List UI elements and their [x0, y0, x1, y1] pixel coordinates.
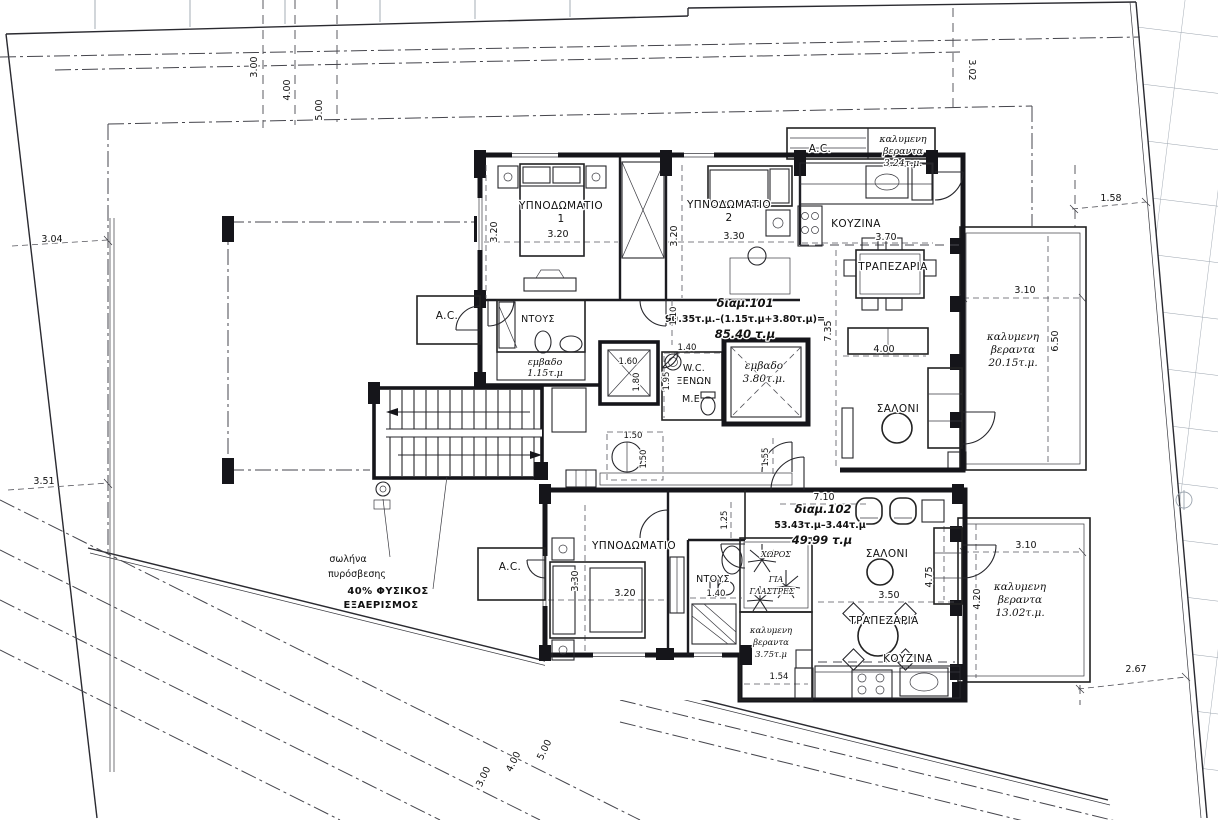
apt101-shower-area-2: 1.15τ.μ: [527, 368, 563, 379]
apt101-living-label: ΣΑΛΟΝΙ: [877, 403, 920, 415]
apt102-veranda-side-depth: 4.20: [972, 588, 983, 609]
apt101-veranda-side-2: βεραντα: [990, 344, 1035, 356]
apt102-shower-width: 1.40: [707, 589, 726, 599]
dim-left-351: 3.51: [33, 476, 54, 487]
apt102-veranda-side-3: 13.02τ.μ.: [995, 607, 1044, 619]
setback-bottom-3: 3.00: [474, 765, 493, 789]
setback-top-5: 5.00: [314, 99, 325, 120]
floor-plan-canvas: 3.00 4.00 5.00 3.04 3.51 3.02 1.58 2.67 …: [0, 0, 1218, 820]
apt101-ac-side-label: A.C.: [436, 310, 459, 322]
apt101-bedroom2-width: 3.30: [723, 231, 744, 242]
apt101-kitchen-width: 3.70: [875, 232, 896, 243]
apt102-veranda-side-2: βεραντα: [997, 594, 1042, 606]
apt101-dim-wc-width: 1.40: [678, 343, 697, 353]
apt101-bedroom2-depth: 3.20: [669, 225, 680, 246]
apt101-veranda-side-1: καλυμενη: [986, 331, 1040, 343]
apt101-kitchen-label: ΚΟΥΖΙΝΑ: [831, 218, 881, 230]
apt102-veranda-small-3: 3.75τ.μ: [755, 650, 787, 660]
dim-left-304: 3.04: [41, 234, 62, 245]
apt102-living-label: ΣΑΛΟΝΙ: [866, 548, 909, 560]
apt101-living-depth: 7.35: [823, 320, 834, 341]
setback-bottom-5: 5.00: [535, 738, 554, 762]
apt101-wc-label-1: W.C.: [683, 363, 705, 374]
apt101-veranda-top-2: βεραντα: [882, 146, 924, 157]
dim-right-302: 3.02: [966, 59, 977, 80]
ventilation-label-1: 40% ΦΥΣΙΚΟΣ: [347, 586, 428, 597]
apt101-area-total: 85.40 τ.μ: [715, 327, 776, 341]
neighbor-grid: [1136, 0, 1218, 820]
apt101-veranda-top-3: 3.24τ.μ.: [884, 158, 923, 169]
apt101-dim-turn-h: 1.50: [639, 450, 649, 469]
apt102-bedroom-depth: 3.30: [570, 570, 581, 591]
apt102-bedroom-label: ΥΠΝΟΔΩΜΑΤΙΟ: [591, 540, 676, 552]
apt101-bedroom1-label: ΥΠΝΟΔΩΜΑΤΙΟ: [518, 200, 603, 212]
apt102-dining-label: ΤΡΑΠΕΖΑΡΙΑ: [848, 615, 919, 627]
setback-top-4: 4.00: [282, 79, 293, 100]
apt101-bedroom1-depth: 3.20: [489, 221, 500, 242]
apt101-dim-turn-w: 1.50: [624, 431, 643, 441]
apt101-veranda-top-1: καλυμενη: [878, 134, 926, 145]
apt102-kitchen-label: ΚΟΥΖΙΝΑ: [883, 653, 933, 665]
apt102-ac-side-label: A.C.: [499, 561, 522, 573]
apt102-planter-3: ΓΛΑΣΤΡΕΣ: [749, 587, 795, 596]
apt102-veranda-side-1: καλυμενη: [993, 581, 1047, 593]
apt101-ac-roof-label: A.C.: [809, 143, 832, 155]
apt102-shower-label: ΝΤΟΥΣ: [696, 574, 730, 585]
apt102-width: 7.10: [813, 492, 834, 503]
fire-hose-symbol: [374, 482, 390, 509]
top-fence-ticks: [95, 0, 570, 29]
apt101-shaft-area-2: 3.80τ.μ.: [743, 373, 786, 385]
apt101-veranda-side-3: 20.15τ.μ.: [987, 357, 1037, 369]
apt101-bedroom2-label: ΥΠΝΟΔΩΜΑΤΙΟ: [686, 199, 771, 211]
dim-right-267: 2.67: [1125, 664, 1146, 675]
ventilation-label-2: ΕΞΑΕΡΙΣΜΟΣ: [344, 600, 419, 611]
apt102-veranda-side-width: 3.10: [1015, 540, 1036, 551]
apt101-wc-label-2: ΞΕΝΩΝ: [677, 376, 712, 387]
fire-pipe-label-2: πυρόσβεσης: [328, 569, 386, 580]
apt101-dim-hall: 1.10: [669, 307, 679, 326]
apt102-veranda-small-1: καλυμενη: [749, 626, 793, 636]
apt101-living-width: 4.00: [873, 344, 894, 355]
apt101-me-label: M.E: [682, 394, 700, 405]
apt101-area-formula: 90.35τ.μ.–(1.15τ.μ+3.80τ.μ)=: [665, 314, 825, 325]
apt102-veranda-small-width: 1.54: [770, 672, 789, 682]
dim-right-158: 1.58: [1100, 193, 1121, 204]
apt102-dim-hall: 1.25: [720, 511, 730, 530]
apt102-dining-width: 3.50: [878, 590, 899, 601]
apt101-dim-wc-depth: 1.95: [662, 372, 672, 391]
apt102-bedroom-width: 3.20: [614, 588, 635, 599]
fire-pipe-label-1: σωλήνα: [329, 554, 366, 565]
apt102-veranda-small-2: βεραντα: [752, 638, 789, 648]
apt101-veranda-side-width: 3.10: [1014, 285, 1035, 296]
setback-top-3: 3.00: [249, 56, 260, 77]
apt101-bedroom1-number: 1: [557, 213, 564, 225]
apt102-id: διαμ.102: [794, 502, 851, 516]
apt101-lift-depth: 1.80: [632, 373, 642, 392]
apt102-area-total: 49.99 τ.μ: [791, 533, 853, 547]
floor-plan-sheet: 3.00 4.00 5.00 3.04 3.51 3.02 1.58 2.67 …: [0, 0, 1218, 820]
apt101-bedroom1-width: 3.20: [547, 229, 568, 240]
apt101-shaft-area-1: εμβαδο: [745, 360, 783, 372]
apt102-living-depth: 4.75: [924, 566, 935, 587]
apt101-dim-entry: 1.55: [761, 448, 771, 467]
apt101-veranda-side-depth: 6.50: [1050, 330, 1061, 351]
setback-bottom-4: 4.00: [504, 750, 523, 774]
apt101-dining-label: ΤΡΑΠΕΖΑΡΙΑ: [857, 261, 928, 273]
apt101-shower-label: ΝΤΟΥΣ: [521, 314, 555, 325]
apt102-area-formula: 53.43τ.μ–3.44τ.μ: [774, 520, 866, 531]
apt102-planter-1: ΧΩΡΟΣ: [760, 550, 791, 559]
apt101-lift-width: 1.60: [619, 357, 638, 367]
apt101-bedroom2-number: 2: [725, 212, 732, 224]
apt101-id: διαμ.101: [716, 296, 773, 310]
apt101-shower-area-1: εμβαδο: [528, 357, 563, 368]
apt102-planter-2: ΓΙΑ: [768, 575, 784, 584]
